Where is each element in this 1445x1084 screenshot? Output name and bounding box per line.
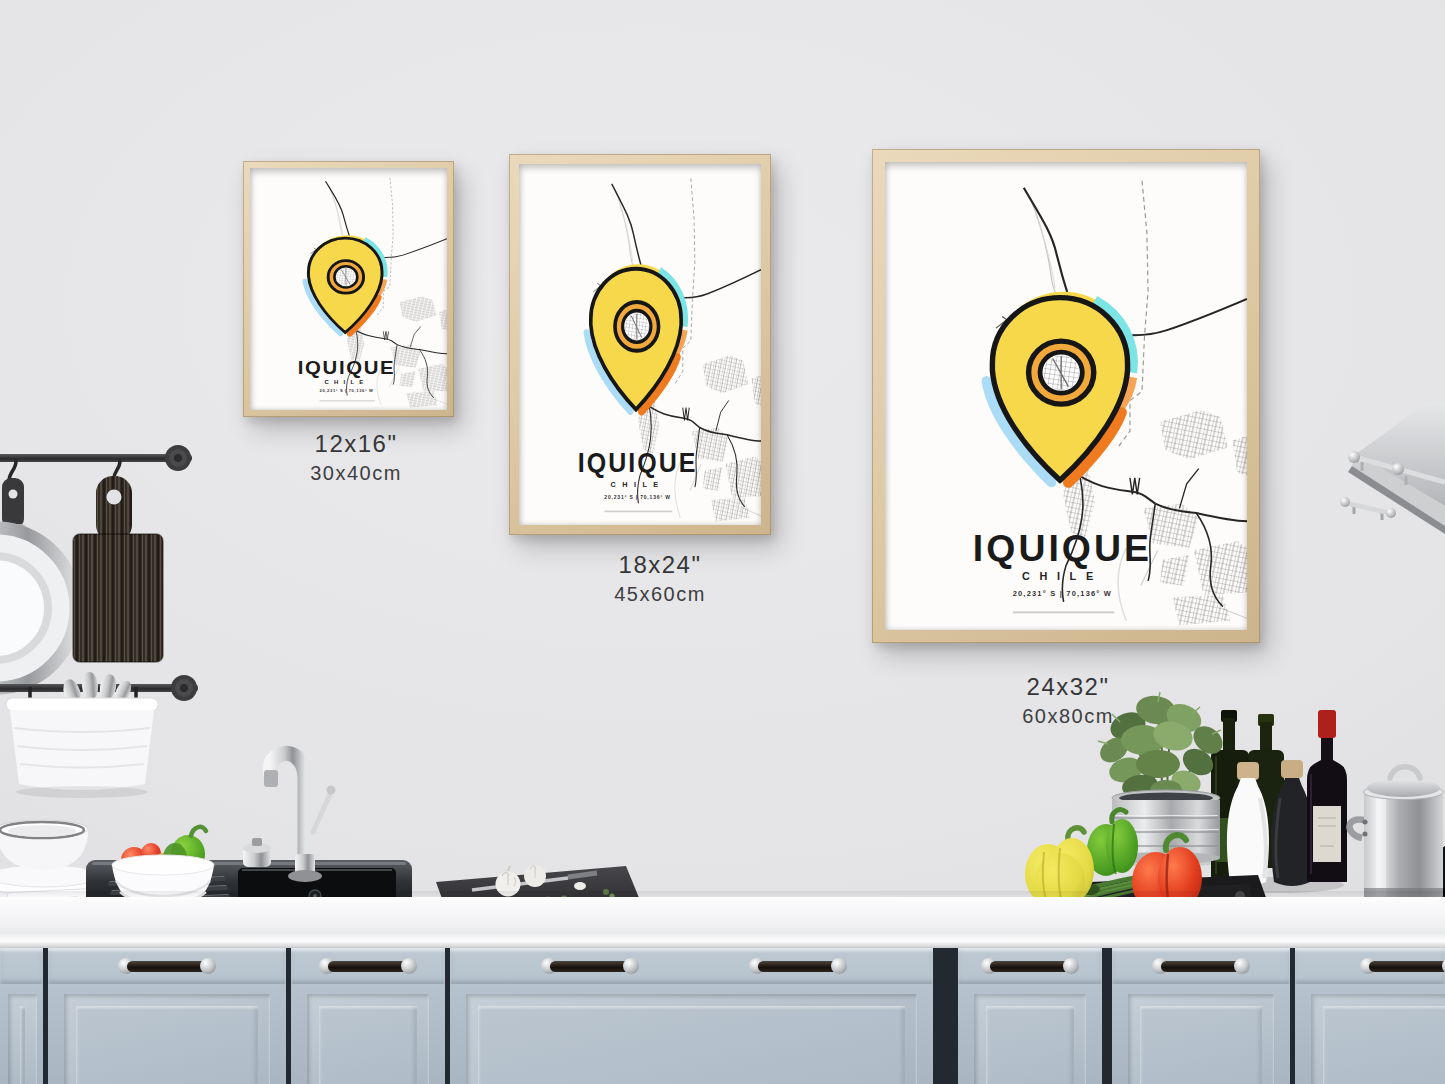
lid-handle (1390, 767, 1420, 778)
kitchen-poster-mockup-photo: IQUIQUE CHILE 20,231° S | 70,136° W (0, 0, 1445, 1084)
hanging-cutting-board (73, 461, 163, 662)
poster-glass-shadow (519, 164, 761, 525)
plant-foliage (1095, 692, 1228, 800)
s-hook (114, 461, 120, 478)
countertop (0, 897, 1445, 947)
cabinet-door (48, 948, 286, 1084)
cabinet-handle (1152, 958, 1250, 974)
size-inches: 12x16" (241, 430, 471, 458)
framed-poster-18x24 (509, 154, 771, 535)
cabinet-drawer-unit (291, 948, 445, 1084)
grinder-wood-cap (1281, 760, 1303, 778)
kitchen-cabinets (0, 948, 1445, 1084)
range-hood (1338, 402, 1445, 534)
cabinet-drawer-unit (1112, 948, 1290, 1084)
wine-capsule (1318, 710, 1336, 738)
poster-glass-shadow (885, 162, 1247, 630)
framed-poster-24x32 (872, 149, 1260, 643)
grinder-wood-cap (1237, 762, 1259, 780)
poster-art-small (250, 168, 447, 410)
size-cm: 30x40cm (241, 462, 471, 485)
framed-poster-12x16 (243, 161, 454, 417)
stock-pot (1349, 767, 1443, 900)
hanging-pan (0, 461, 76, 688)
poster-glass-shadow (250, 168, 447, 410)
cabinet-drawer-unit-partial (1295, 948, 1445, 1084)
cabinet-handle (749, 958, 847, 974)
poster-art-medium (519, 164, 761, 525)
pot-lid (1367, 779, 1440, 797)
size-caption-small: 12x16" 30x40cm (241, 430, 471, 485)
cabinet-door-partial (0, 948, 43, 1084)
wine-label (1313, 806, 1341, 862)
faucet-lever (313, 792, 331, 832)
rail-end-cap (165, 445, 191, 471)
soap-dispenser (243, 838, 271, 867)
size-inches: 18x24" (545, 551, 775, 579)
faucet-spout (264, 770, 278, 787)
pot-handle (1349, 819, 1364, 838)
pepper-stem (191, 827, 206, 836)
garlic-clove (574, 882, 586, 890)
cabinet-handle (541, 958, 639, 974)
size-caption-medium: 18x24" 45x60cm (545, 551, 775, 606)
countertop-edge (0, 941, 1445, 948)
cabinet-handle (118, 958, 216, 974)
cabinet-drawer-unit (958, 948, 1102, 1084)
size-cm: 45x60cm (545, 583, 775, 606)
cabinet-handle (1360, 958, 1445, 974)
cabinet-handle (319, 958, 417, 974)
cabinet-handle (981, 958, 1079, 974)
wall-rail-top (0, 454, 192, 462)
cabinet-wide-drawer (450, 948, 933, 1084)
poster-art-large (885, 162, 1247, 630)
